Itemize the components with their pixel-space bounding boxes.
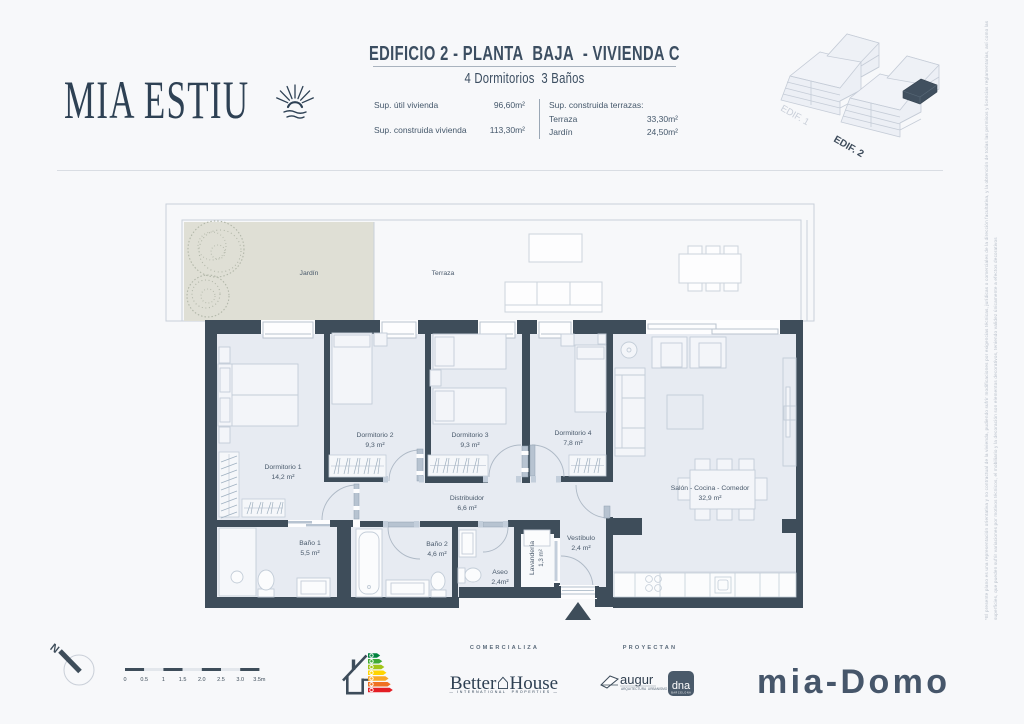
- svg-text:Jardín: Jardín: [300, 270, 319, 277]
- svg-text:Baño 2: Baño 2: [426, 541, 448, 548]
- svg-text:Aseo: Aseo: [492, 569, 508, 576]
- svg-text:ARQUITECTURA URBANISMO: ARQUITECTURA URBANISMO: [621, 687, 668, 691]
- svg-text:Dormitorio 2: Dormitorio 2: [356, 432, 393, 439]
- svg-text:14,2 m²: 14,2 m²: [271, 474, 295, 481]
- svg-text:4,6 m²: 4,6 m²: [427, 551, 447, 558]
- svg-text:augur: augur: [620, 672, 654, 687]
- svg-text:1: 1: [162, 677, 165, 683]
- svg-text:3.0: 3.0: [236, 677, 244, 683]
- svg-text:2,4m²: 2,4m²: [491, 579, 509, 586]
- svg-text:Dormitorio 1: Dormitorio 1: [264, 464, 301, 471]
- svg-text:Vestíbulo: Vestíbulo: [567, 535, 595, 542]
- svg-text:Baño 1: Baño 1: [299, 540, 321, 547]
- svg-text:EDIF. 1: EDIF. 1: [779, 103, 811, 128]
- svg-text:Terraza: Terraza: [432, 270, 455, 277]
- svg-text:3.5m: 3.5m: [253, 677, 266, 683]
- svg-text:1.5: 1.5: [179, 677, 187, 683]
- svg-text:EDIF. 2: EDIF. 2: [832, 134, 866, 160]
- svg-text:7,8 m²: 7,8 m²: [563, 440, 583, 447]
- svg-text:dna: dna: [672, 680, 691, 692]
- svg-text:2,4 m²: 2,4 m²: [571, 545, 591, 552]
- svg-text:0.5: 0.5: [140, 677, 148, 683]
- svg-text:9,3 m²: 9,3 m²: [460, 442, 480, 449]
- svg-text:1,3 m²: 1,3 m²: [538, 549, 545, 567]
- svg-text:2.0: 2.0: [198, 677, 206, 683]
- svg-text:Distribuidor: Distribuidor: [450, 495, 485, 502]
- svg-text:Dormitorio 4: Dormitorio 4: [554, 430, 591, 437]
- svg-text:Salón - Cocina - Comedor: Salón - Cocina - Comedor: [671, 485, 750, 492]
- svg-text:5,5 m²: 5,5 m²: [300, 550, 320, 557]
- svg-text:9,3 m²: 9,3 m²: [365, 442, 385, 449]
- svg-text:6,6 m²: 6,6 m²: [457, 505, 477, 512]
- svg-text:0: 0: [123, 677, 126, 683]
- svg-text:B A R C E L O N A: B A R C E L O N A: [671, 692, 691, 695]
- svg-text:2.5: 2.5: [217, 677, 225, 683]
- svg-text:Lavandería: Lavandería: [529, 541, 536, 575]
- svg-text:N: N: [48, 642, 62, 656]
- svg-text:32,9 m²: 32,9 m²: [698, 495, 722, 502]
- svg-text:Dormitorio 3: Dormitorio 3: [451, 432, 488, 439]
